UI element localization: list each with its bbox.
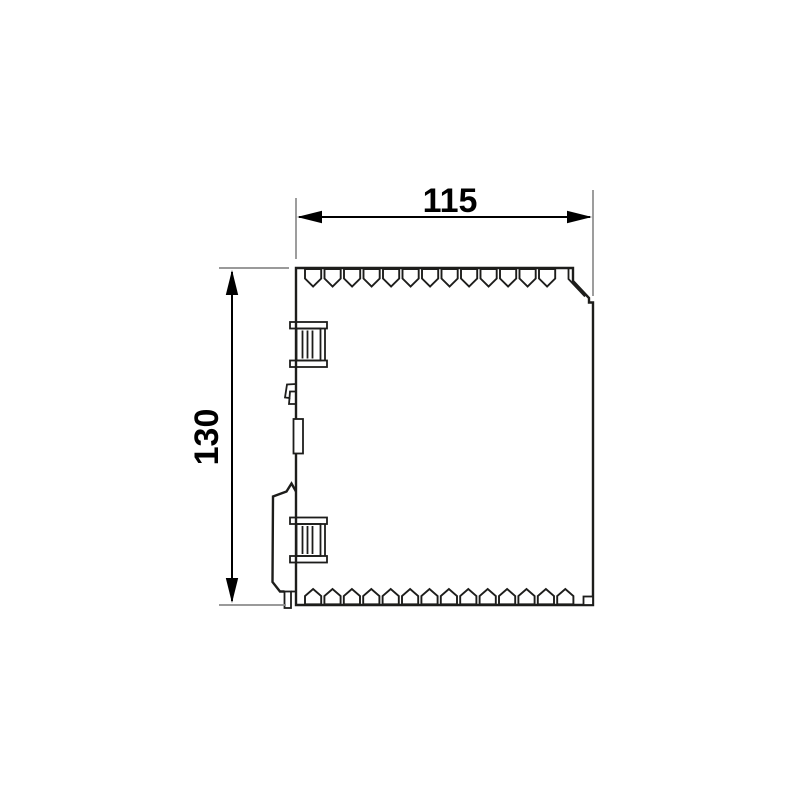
bottom-right-foot [584, 597, 594, 606]
din-rail-latch [273, 484, 297, 609]
width-arrow-right [567, 211, 592, 223]
height-arrow-bottom [226, 578, 238, 603]
rear-slot [294, 419, 304, 454]
height-arrow-top [226, 270, 238, 295]
dimension-drawing-svg: 115 130 [0, 0, 800, 800]
device-housing [273, 268, 594, 608]
mounting-hook [285, 384, 296, 404]
height-dimension-label: 130 [188, 409, 226, 466]
drawing-canvas: 115 130 [0, 0, 800, 800]
width-arrow-left [297, 211, 322, 223]
width-dimension-label: 115 [423, 182, 478, 220]
housing-outline [296, 268, 593, 605]
